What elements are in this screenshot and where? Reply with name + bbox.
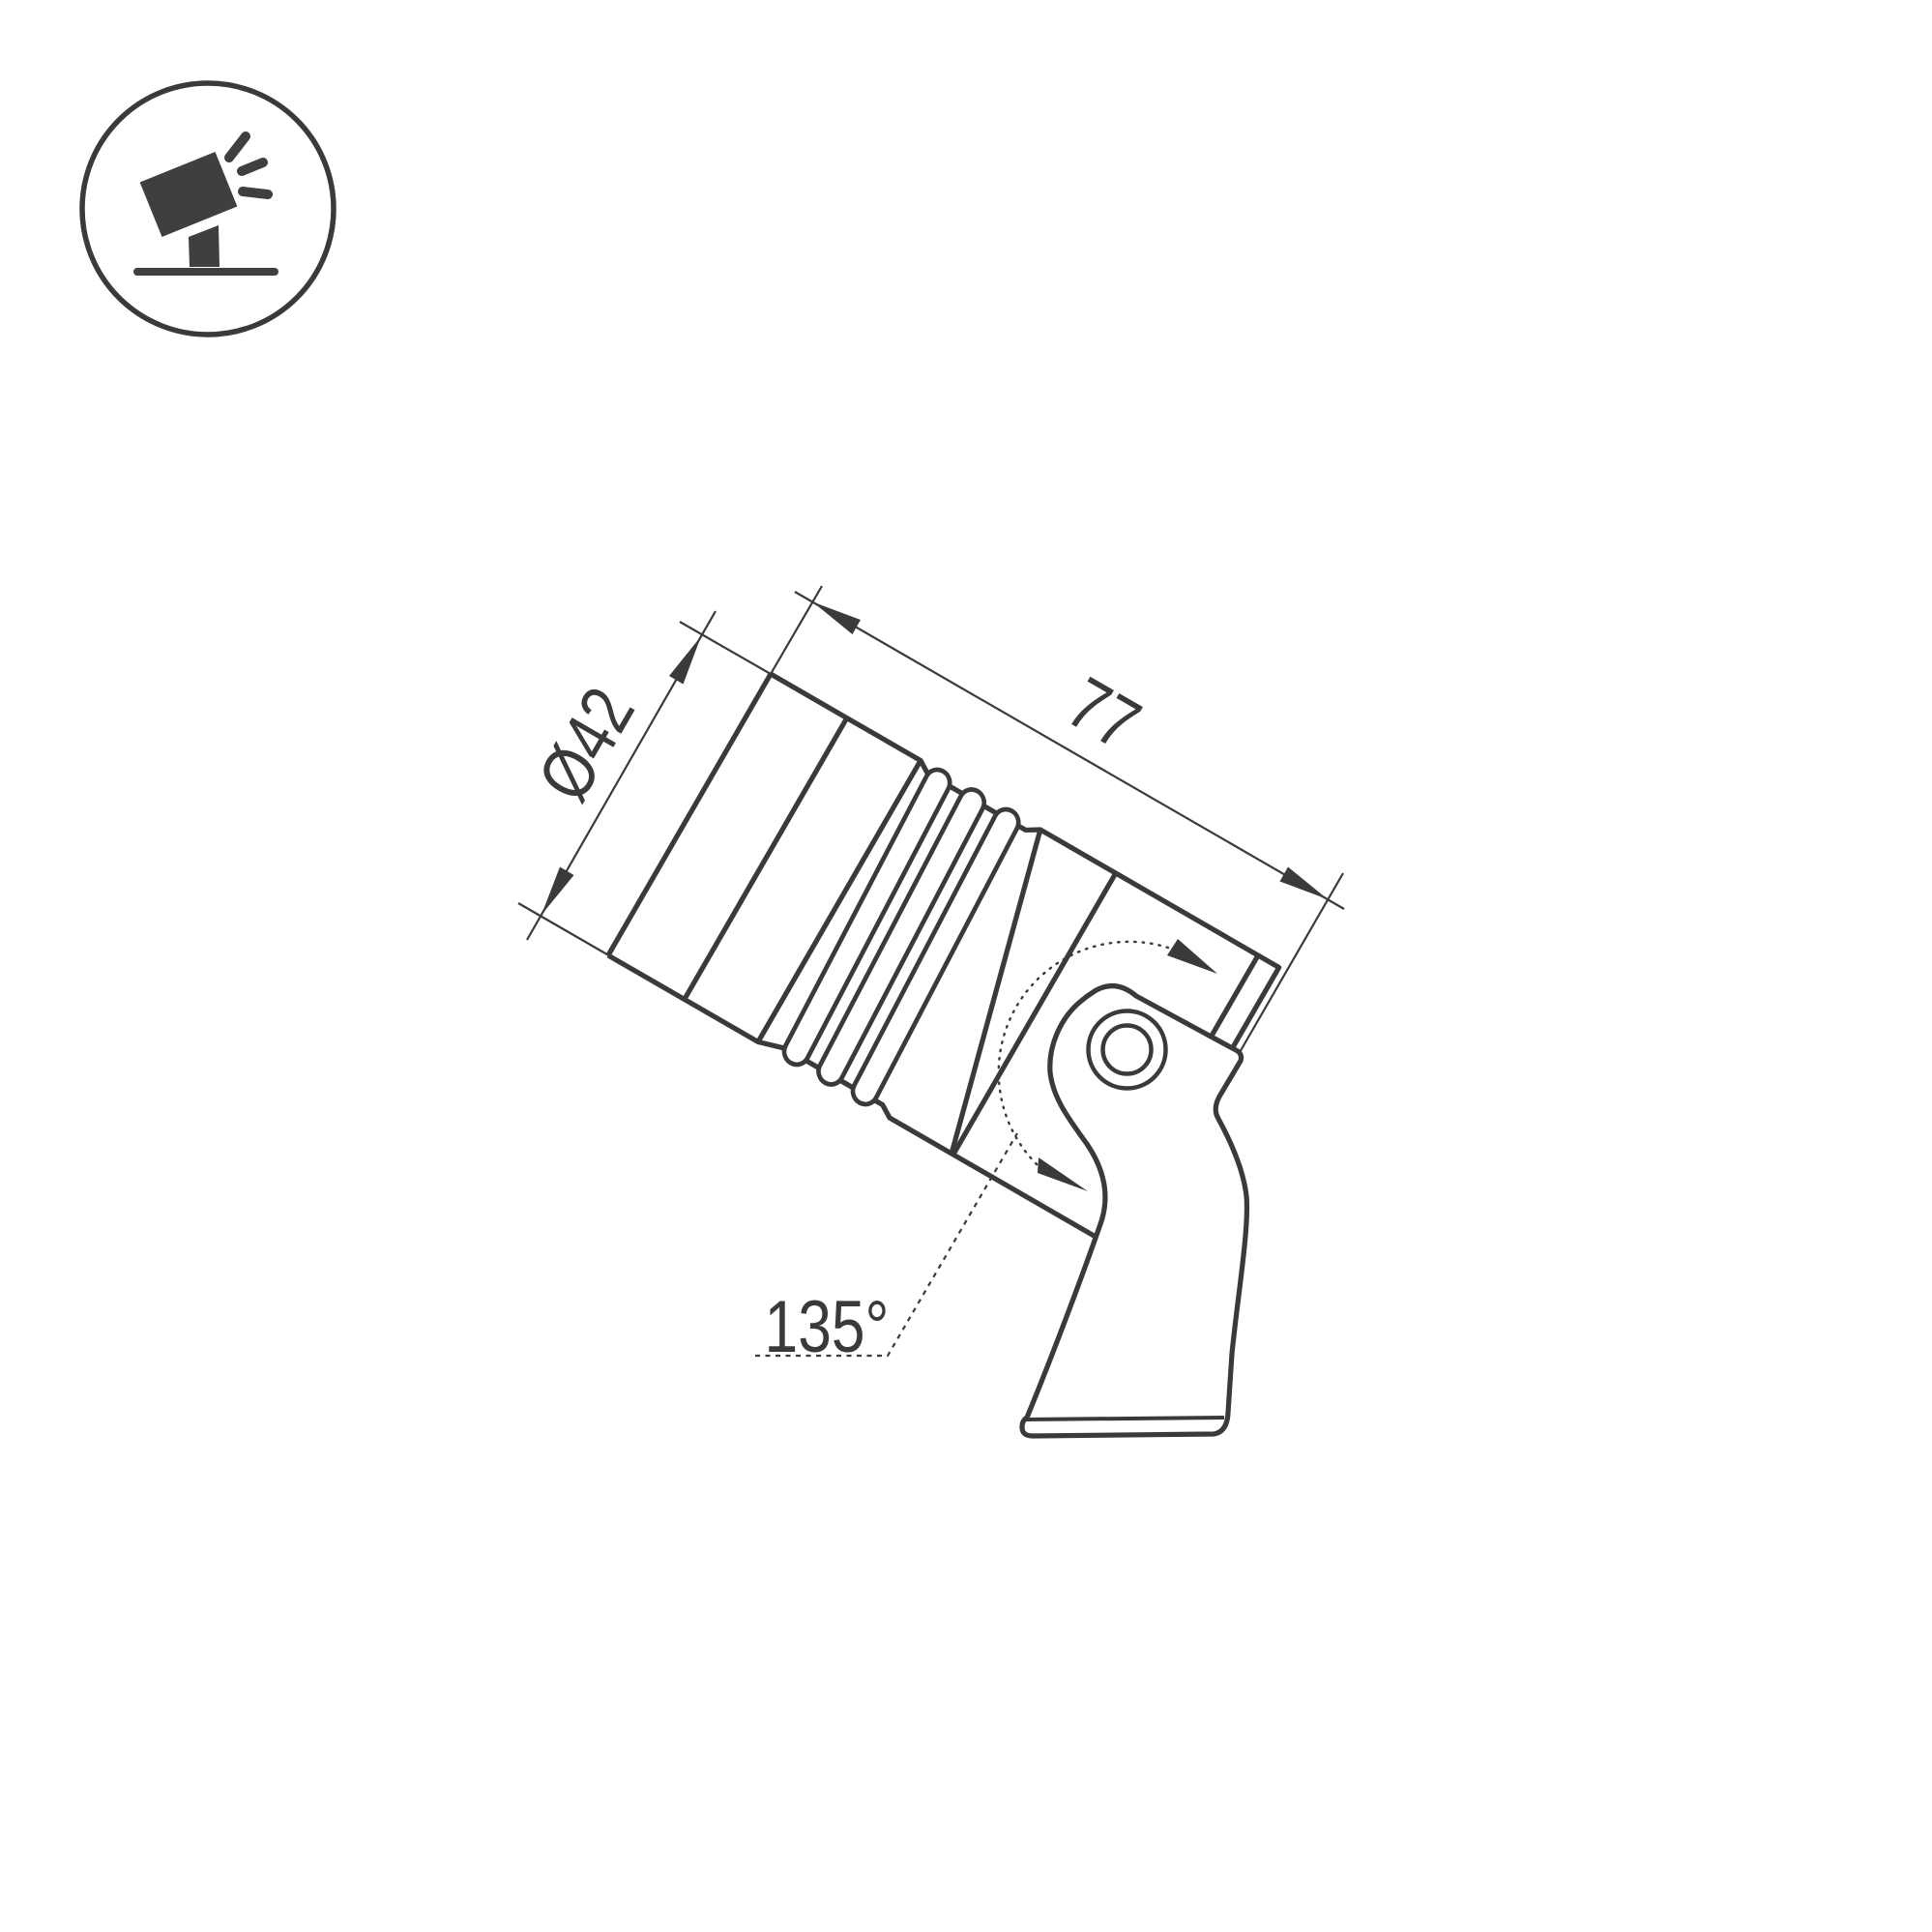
- svg-text:135°: 135°: [765, 1285, 890, 1367]
- svg-text:Ø42: Ø42: [522, 674, 651, 814]
